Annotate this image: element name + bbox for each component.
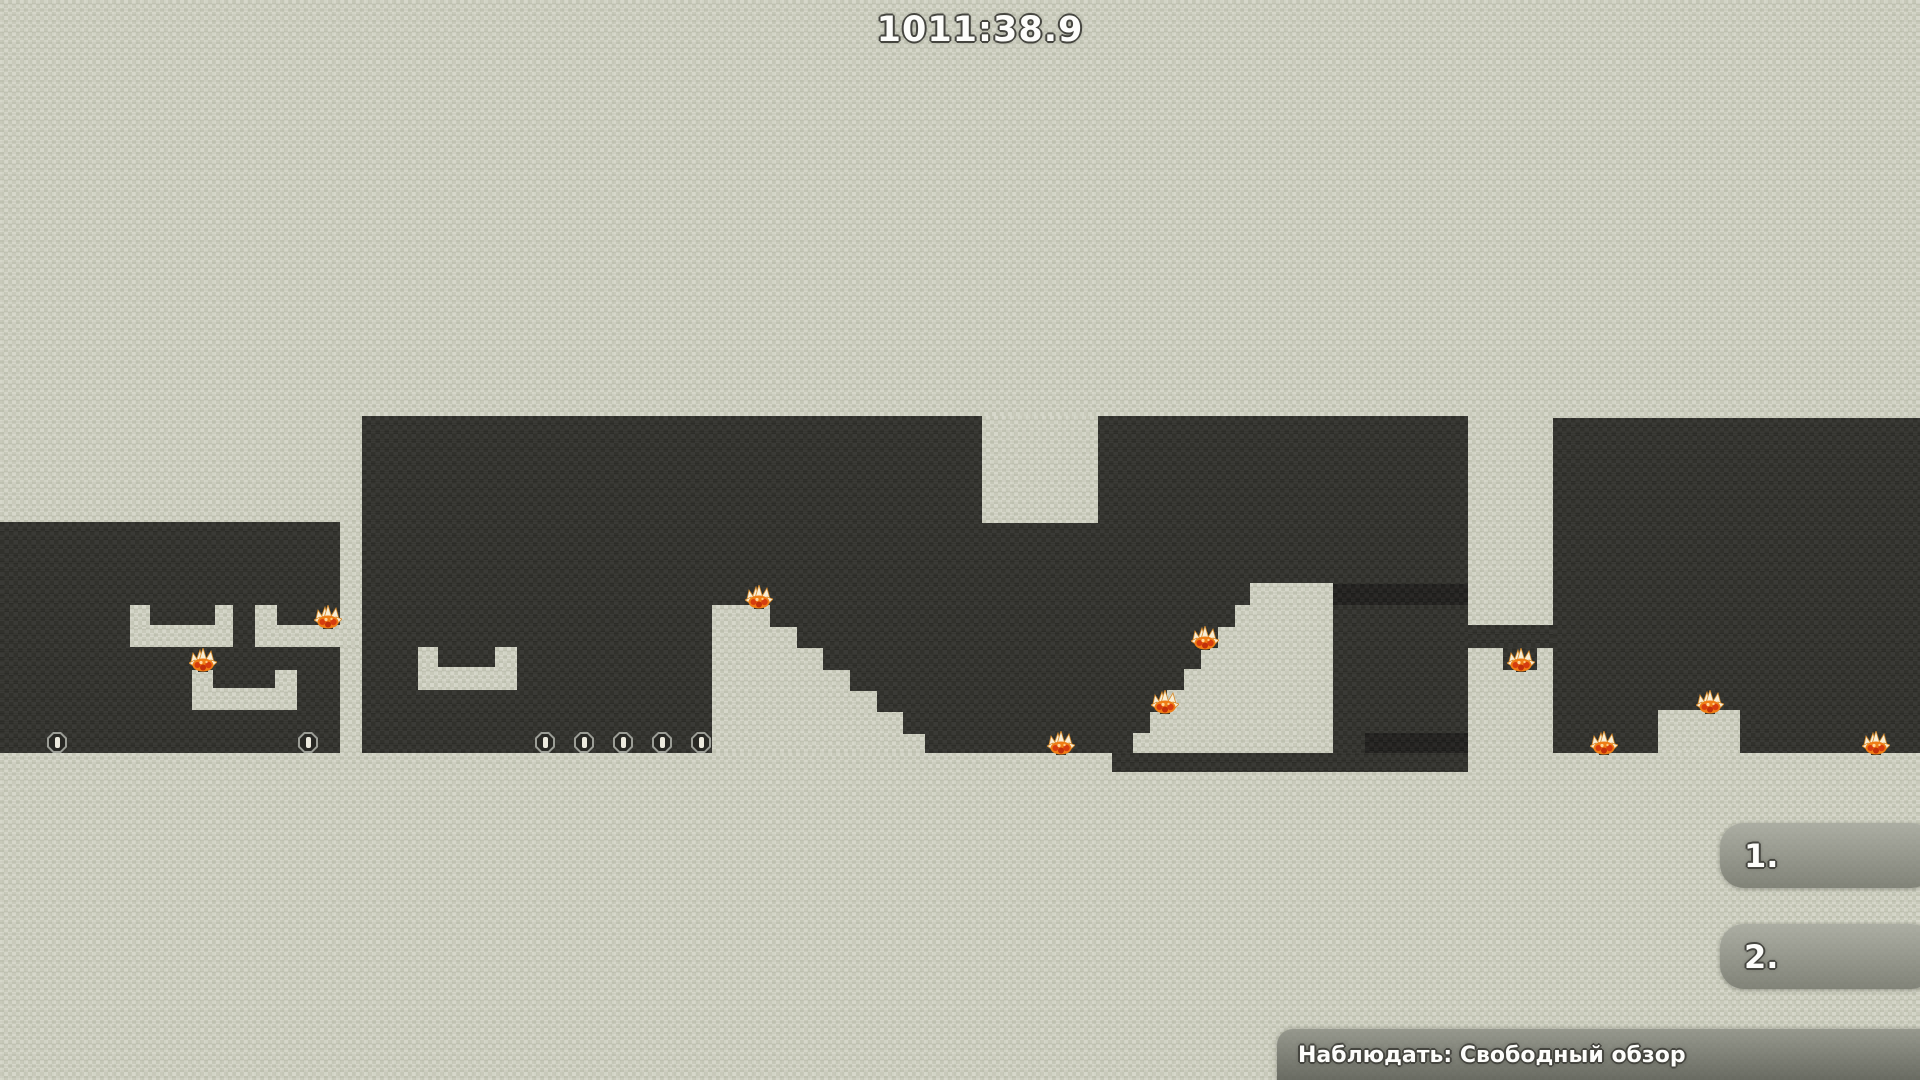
u1-leg-l: [130, 605, 150, 627]
mine-slit: [55, 737, 60, 748]
spectate-status-label: Наблюдать: Свободный обзор: [1298, 1043, 1686, 1068]
u1-leg-r: [215, 605, 233, 627]
spectate-status-bar: Наблюдать: Свободный обзор: [1277, 1029, 1920, 1080]
u2-bar: [255, 625, 362, 647]
ceiling-block: [982, 416, 1098, 523]
fire-sprite: [1191, 626, 1219, 650]
mine-slit: [660, 737, 665, 748]
scoreboard-rank: 2.: [1744, 938, 1778, 976]
fire-sprite: [745, 585, 773, 609]
u4-bar: [418, 667, 517, 690]
mine-slit: [621, 737, 626, 748]
u3-leg-l: [192, 670, 213, 690]
deep-band-upper: [1333, 584, 1468, 605]
u2-leg-l: [255, 605, 277, 627]
fire-sprite: [1862, 731, 1890, 755]
mine: [691, 732, 711, 753]
mine: [298, 732, 318, 753]
underfloor-tunnel: [1112, 753, 1468, 772]
u4-leg-l: [418, 647, 438, 669]
mine: [613, 732, 633, 753]
mine: [47, 732, 67, 753]
match-timer: 1011:38.9: [877, 10, 1084, 50]
fire-sprite: [189, 648, 217, 672]
u4-leg-r: [495, 647, 517, 669]
mine: [535, 732, 555, 753]
fire-sprite: [314, 605, 342, 629]
scoreboard-bar-2: 2.: [1720, 924, 1920, 989]
u3-bar: [192, 688, 297, 710]
mine: [574, 732, 594, 753]
fire-sprite: [1590, 731, 1618, 755]
scoreboard-rank: 1.: [1744, 837, 1778, 875]
u3-leg-r: [275, 670, 297, 690]
fire-sprite: [1696, 690, 1724, 714]
mine-slit: [582, 737, 587, 748]
u1-bar: [130, 625, 233, 647]
fire-sprite: [1507, 648, 1535, 672]
deep-band-lower: [1365, 733, 1468, 753]
mine: [652, 732, 672, 753]
mine-slit: [306, 737, 311, 748]
pillar-tunnel: [1468, 625, 1553, 648]
fire-sprite: [1047, 731, 1075, 755]
cave-right: [1553, 418, 1920, 753]
game-viewport: 1011:38.9 1. 2. Наблюдать: Свободный обз…: [0, 0, 1920, 1080]
scoreboard-bar-1: 1.: [1720, 823, 1920, 888]
mine-slit: [699, 737, 704, 748]
floor-block: [1658, 710, 1740, 753]
mine-slit: [543, 737, 548, 748]
fire-sprite: [1151, 690, 1179, 714]
